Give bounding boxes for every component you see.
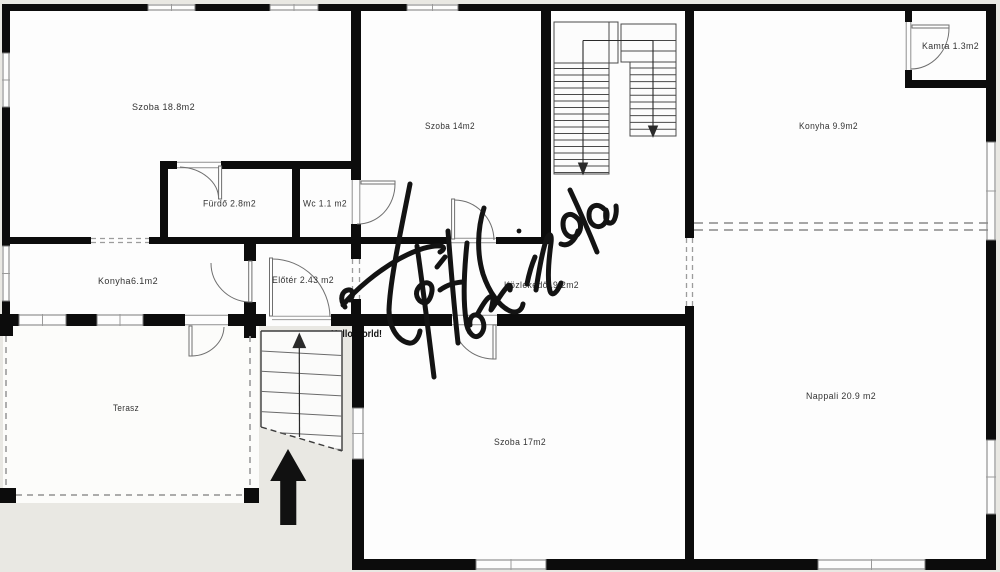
svg-text:Terasz: Terasz bbox=[113, 403, 139, 413]
svg-text:Előtér 2.43 m2: Előtér 2.43 m2 bbox=[272, 275, 334, 285]
svg-text:Szoba 18.8m2: Szoba 18.8m2 bbox=[132, 102, 195, 112]
svg-text:Fürdő 2.8m2: Fürdő 2.8m2 bbox=[203, 199, 256, 209]
svg-text:Szoba 17m2: Szoba 17m2 bbox=[494, 437, 546, 447]
svg-text:Szoba 14m2: Szoba 14m2 bbox=[425, 121, 475, 131]
svg-text:Konyha6.1m2: Konyha6.1m2 bbox=[98, 276, 158, 286]
svg-text:Kamra 1.3m2: Kamra 1.3m2 bbox=[922, 41, 979, 51]
svg-text:Közlekedő19.2m2: Közlekedő19.2m2 bbox=[504, 280, 579, 290]
svg-text:Wc 1.1 m2: Wc 1.1 m2 bbox=[303, 199, 347, 209]
svg-text:Konyha 9.9m2: Konyha 9.9m2 bbox=[799, 121, 858, 131]
svg-text:Nappali 20.9 m2: Nappali 20.9 m2 bbox=[806, 391, 876, 401]
